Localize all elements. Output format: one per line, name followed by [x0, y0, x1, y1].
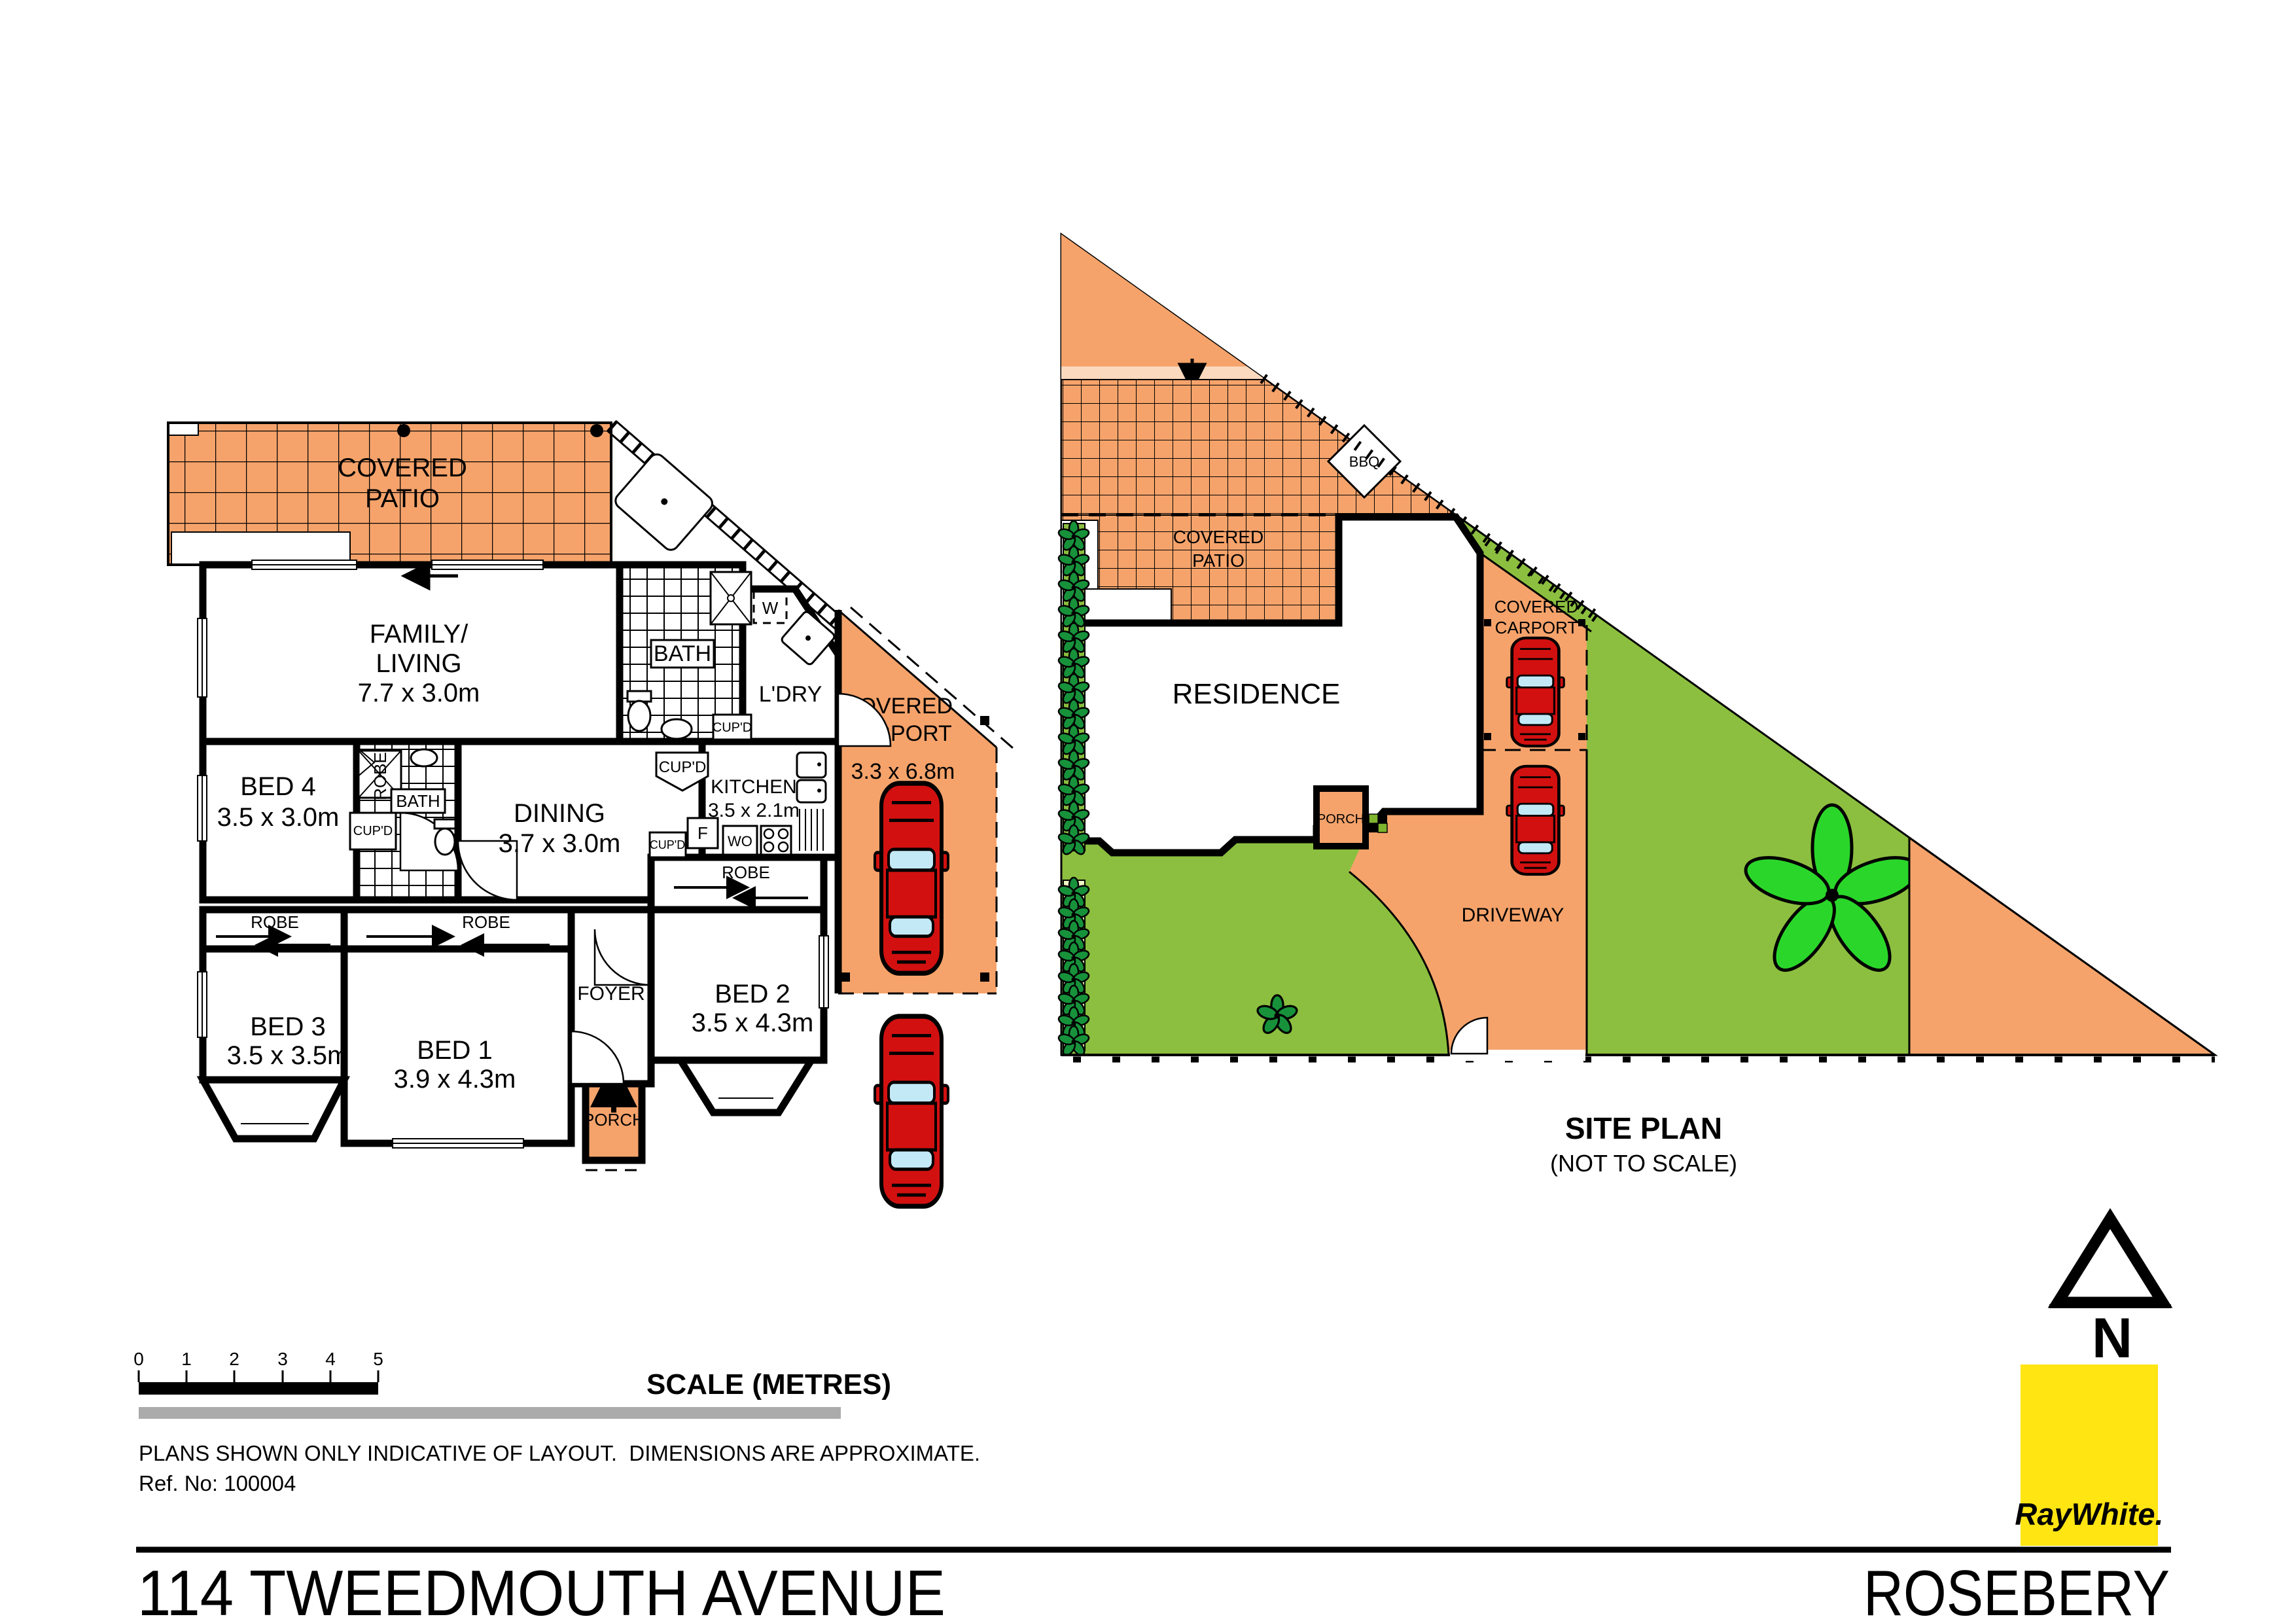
site-rear-corner: [1909, 838, 2215, 1055]
scale-bar: 0 1 2 3 4 5 SCALE (METRES): [133, 1349, 891, 1419]
site-carport-label-2: CARPORT: [1495, 618, 1578, 637]
bed4-label: BED 4: [240, 772, 316, 801]
patio-label-2: PATIO: [365, 484, 440, 513]
patio-post-icon: [590, 424, 603, 437]
carport-dims: 3.3 x 6.8m: [851, 759, 955, 784]
scale-tick-0: 0: [133, 1349, 144, 1369]
bed4-cupboard-label: CUP'D: [353, 824, 393, 838]
dining-dims: 3.7 x 3.0m: [499, 829, 621, 858]
patio-post-icon: [397, 424, 410, 437]
site-plan: BBQ COVERED PATIO COVERED CARPORT DRIVEW…: [1057, 234, 2215, 1177]
laundry-cupboard-label: CUP'D: [713, 721, 752, 735]
scale-title: SCALE (METRES): [646, 1368, 891, 1400]
car-icon: [875, 783, 948, 973]
floorplan-carport: COVERED CARPORT 3.3 x 6.8m: [838, 610, 997, 993]
family-label-1: FAMILY/: [370, 620, 468, 649]
kitchen-label: KITCHEN: [711, 776, 797, 798]
residence-label: RESIDENCE: [1173, 678, 1341, 710]
site-plan-title: SITE PLAN: [1565, 1111, 1722, 1145]
bed2-robe-label: ROBE: [722, 863, 770, 882]
basin-icon: [662, 719, 692, 739]
kitchen-dims: 3.5 x 2.1m: [708, 800, 800, 821]
site-porch-label: PORCH: [1317, 812, 1364, 827]
floorplan-covered-patio: COVERED PATIO: [168, 423, 611, 565]
plan-canvas: COVERED PATIO: [0, 0, 2296, 1623]
bed3-dims: 3.5 x 3.5m: [227, 1041, 349, 1070]
footer-text: PLANS SHOWN ONLY INDICATIVE OF LAYOUT. D…: [136, 1441, 2171, 1623]
wall-oven-label: WO: [728, 833, 752, 849]
toilet-icon: [435, 829, 455, 855]
bed2-dims: 3.5 x 4.3m: [692, 1008, 814, 1037]
ensuite-bath-label: BATH: [396, 791, 440, 811]
raywhite-wordmark: RayWhite.: [2015, 1497, 2163, 1531]
raywhite-logo: RayWhite.: [2015, 1364, 2163, 1546]
washer-label: W: [762, 598, 779, 618]
north-arrow-icon: N: [2049, 1219, 2171, 1370]
bay-window-bed2: [680, 1060, 811, 1113]
site-eave-strip: [1061, 366, 1265, 380]
kitchen-cupboard-label: CUP'D: [650, 838, 685, 851]
laundry-label: L'DRY: [759, 682, 822, 707]
north-label: N: [2092, 1307, 2132, 1370]
bed4-robe-label: ROBE: [370, 752, 390, 800]
bed3-robe-label: ROBE: [251, 912, 299, 932]
bath-label: BATH: [654, 641, 711, 666]
scale-tick-3: 3: [277, 1349, 288, 1369]
bed3-label: BED 3: [250, 1012, 326, 1041]
bed4-dims: 3.5 x 3.0m: [217, 803, 340, 832]
driveway-label: DRIVEWAY: [1462, 904, 1564, 926]
porch-label: PORCH: [583, 1110, 645, 1130]
fridge-label: F: [698, 823, 708, 843]
floorplan-page: COVERED PATIO: [0, 0, 2296, 1623]
dining-label: DINING: [514, 799, 605, 828]
hall-cupboard-label: CUP'D: [659, 758, 707, 776]
patio-label-1: COVERED: [338, 454, 467, 482]
bed1-robe-label: ROBE: [462, 912, 510, 932]
robe-bed1: [344, 910, 571, 949]
family-label-2: LIVING: [376, 649, 461, 678]
site-carport-label-1: COVERED: [1494, 597, 1579, 616]
reference-number: Ref. No: 100004: [139, 1471, 296, 1495]
scale-tick-5: 5: [373, 1349, 383, 1369]
disclaimer-text: PLANS SHOWN ONLY INDICATIVE OF LAYOUT. D…: [139, 1441, 980, 1465]
basin-icon: [411, 749, 437, 766]
scale-tick-4: 4: [325, 1349, 336, 1369]
bbq-label: BBQ: [1349, 454, 1379, 470]
bed1-label: BED 1: [417, 1036, 493, 1065]
car-icon: [1507, 766, 1564, 874]
site-plan-subtitle: (NOT TO SCALE): [1550, 1150, 1737, 1177]
family-dims: 7.7 x 3.0m: [358, 679, 480, 707]
scale-tick-1: 1: [181, 1349, 192, 1369]
car-icon: [1507, 638, 1564, 746]
bed2-label: BED 2: [715, 980, 790, 1008]
bay-window-bed3: [203, 1080, 344, 1139]
site-patio-label-2: PATIO: [1192, 550, 1245, 571]
sink-icon: [797, 753, 826, 777]
scale-tick-2: 2: [229, 1349, 239, 1369]
site-patio-label-1: COVERED: [1173, 527, 1263, 547]
room-laundry: [743, 589, 838, 741]
gray-divider-bar: [139, 1407, 841, 1419]
porch-garden-icon: [1369, 814, 1387, 832]
foyer-label: FOYER: [577, 983, 645, 1005]
toilet-icon: [628, 701, 650, 731]
property-address: 114 TWEEDMOUTH AVENUE: [137, 1557, 945, 1623]
bed1-dims: 3.9 x 4.3m: [394, 1065, 516, 1094]
property-suburb: ROSEBERY: [1863, 1557, 2170, 1623]
car-icon: [875, 1016, 948, 1206]
floor-plan: COVERED PATIO: [168, 421, 1013, 1206]
